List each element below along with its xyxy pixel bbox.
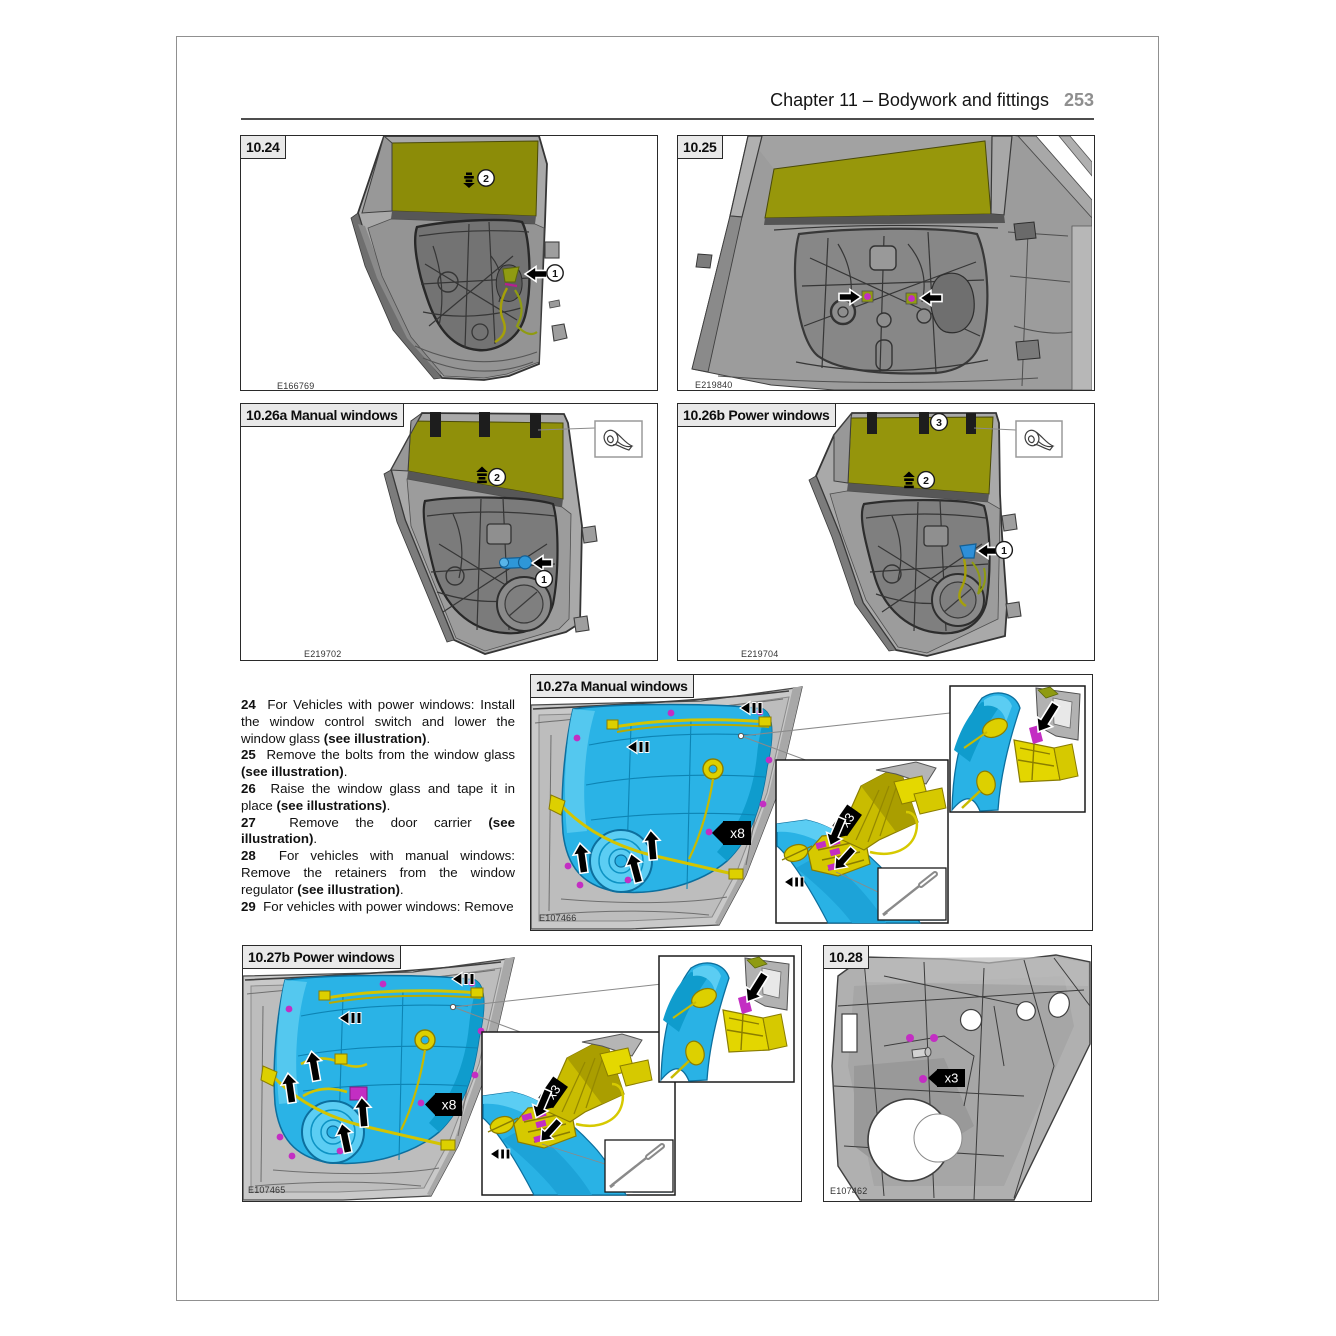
svg-text:2: 2 bbox=[483, 173, 489, 185]
svg-text:2: 2 bbox=[494, 472, 500, 484]
svg-text:x8: x8 bbox=[442, 1096, 457, 1112]
svg-text:3: 3 bbox=[936, 417, 942, 429]
svg-text:x3: x3 bbox=[945, 1071, 959, 1086]
svg-text:x8: x8 bbox=[730, 825, 745, 841]
svg-text:1: 1 bbox=[1001, 545, 1007, 557]
svg-text:1: 1 bbox=[552, 268, 558, 280]
svg-text:2: 2 bbox=[923, 475, 929, 487]
svg-text:1: 1 bbox=[541, 574, 547, 586]
